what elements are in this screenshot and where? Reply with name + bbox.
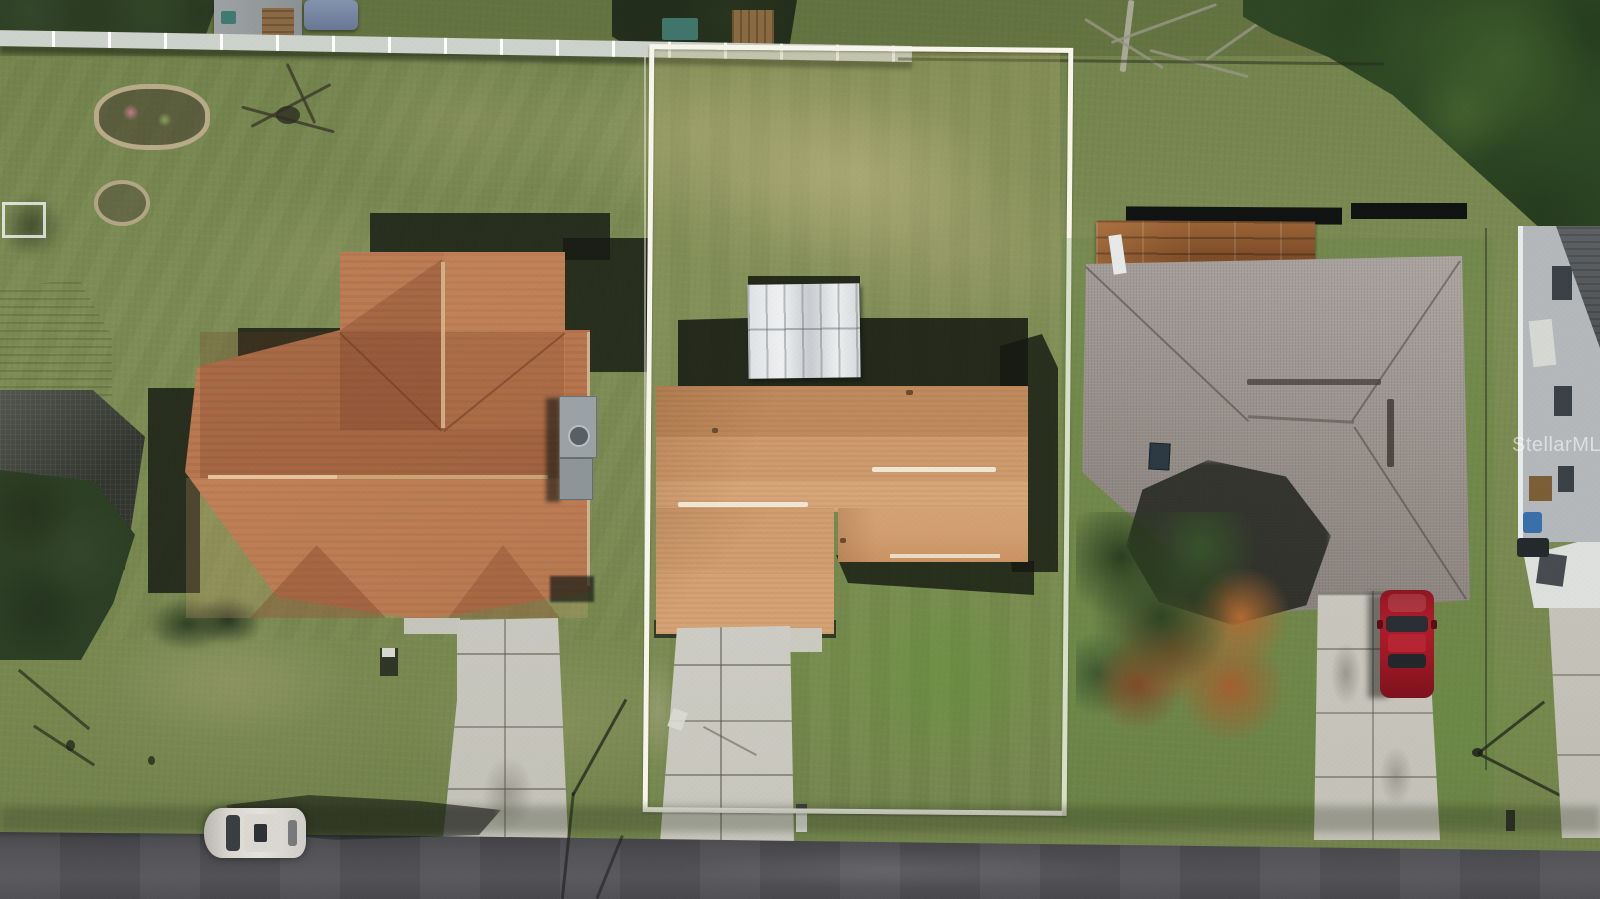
- window: [1558, 466, 1574, 492]
- property-boundary-outline: [643, 44, 1074, 816]
- aerial-photo: StellarMLS: [0, 0, 1600, 899]
- chain-link-fence: [1485, 228, 1487, 770]
- yard-items: [1529, 319, 1557, 367]
- tarp: [662, 18, 698, 40]
- soccer-goal: [2, 202, 46, 238]
- car-rear-window: [288, 820, 297, 846]
- flower-bed-ring: [94, 84, 210, 150]
- ac-shadow: [546, 398, 560, 502]
- storage-box: [1529, 476, 1552, 501]
- skylight: [1148, 442, 1170, 470]
- parked-vehicle-top: [304, 0, 358, 30]
- mailbox: [380, 648, 398, 676]
- ridge-vent: [441, 262, 445, 428]
- mailbox: [1506, 810, 1515, 831]
- eave-shadow: [550, 576, 594, 602]
- car-mirror: [1377, 620, 1383, 629]
- window: [1552, 266, 1572, 300]
- car-hood: [1388, 594, 1426, 612]
- ridge-vent: [1247, 379, 1381, 385]
- mailbox-cap: [382, 648, 395, 657]
- white-car: [204, 808, 306, 858]
- yard-object: [66, 740, 75, 751]
- trash-bin: [1517, 538, 1549, 557]
- colorful-tree: [1076, 512, 1331, 742]
- recycle-bin: [1523, 512, 1542, 533]
- roof-vent: [1387, 399, 1394, 467]
- ac-unit: [559, 458, 593, 500]
- utility-pole: [1472, 748, 1483, 757]
- ac-unit: [559, 396, 597, 458]
- car-windshield: [226, 815, 240, 851]
- yard-equipment: [1536, 552, 1567, 586]
- bare-tree: [276, 106, 300, 124]
- tarp: [221, 11, 236, 24]
- mls-watermark: StellarMLS: [1512, 434, 1600, 457]
- car-windshield: [1386, 616, 1428, 632]
- car-sunroof: [254, 824, 267, 842]
- roof-edge-shadow: [1351, 203, 1467, 219]
- roof-face: [200, 332, 564, 478]
- window: [1554, 386, 1572, 416]
- flower-bed-ring: [94, 180, 150, 226]
- ac-fan: [568, 425, 590, 447]
- car-roof: [1388, 634, 1426, 652]
- walkway: [404, 618, 460, 634]
- car-mirror: [1431, 620, 1437, 629]
- red-car: [1380, 590, 1434, 698]
- yard-object: [148, 756, 155, 765]
- wood-pile: [732, 10, 774, 44]
- ridge-vent: [208, 475, 548, 479]
- car-rear-window: [1388, 654, 1426, 668]
